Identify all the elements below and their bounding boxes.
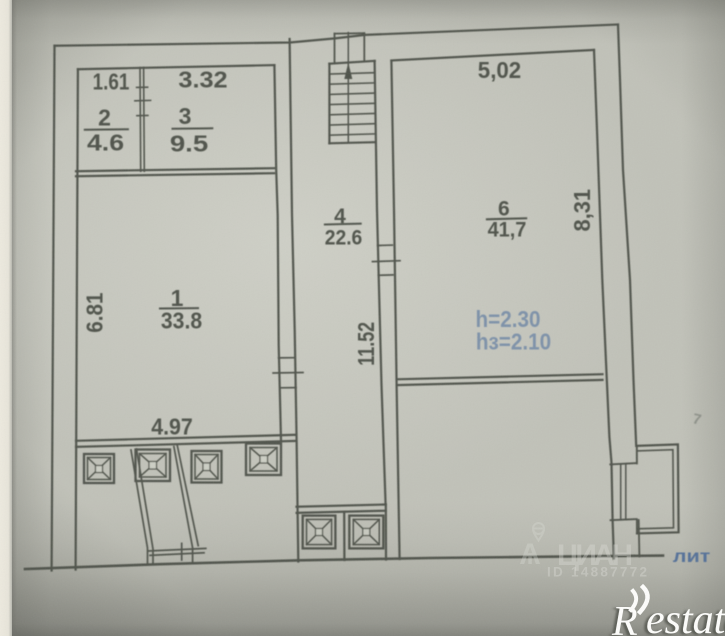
svg-text:6.81: 6.81 [81,292,107,332]
svg-text:estate: estate [646,597,725,636]
svg-text:3: 3 [179,103,192,129]
svg-text:11.52: 11.52 [354,322,380,366]
svg-text:7: 7 [691,410,703,428]
svg-text:3.32: 3.32 [178,68,227,94]
svg-text:2: 2 [98,105,111,131]
svg-text:8,31: 8,31 [569,189,595,232]
svg-text:ID 14887772: ID 14887772 [547,565,647,580]
svg-text:4.97: 4.97 [151,414,193,440]
svg-text:Ѧ: Ѧ [519,538,541,571]
svg-text:лит: лит [673,547,711,567]
svg-text:4.6: 4.6 [87,130,124,156]
svg-text:9.5: 9.5 [170,131,208,156]
svg-text:41,7: 41,7 [488,218,527,242]
svg-text:22.6: 22.6 [325,227,363,250]
svg-text:1.61: 1.61 [93,70,130,95]
svg-text:hз=2.10: hз=2.10 [476,328,551,354]
svg-text:5,02: 5,02 [478,57,521,83]
svg-text:33.8: 33.8 [161,308,202,334]
